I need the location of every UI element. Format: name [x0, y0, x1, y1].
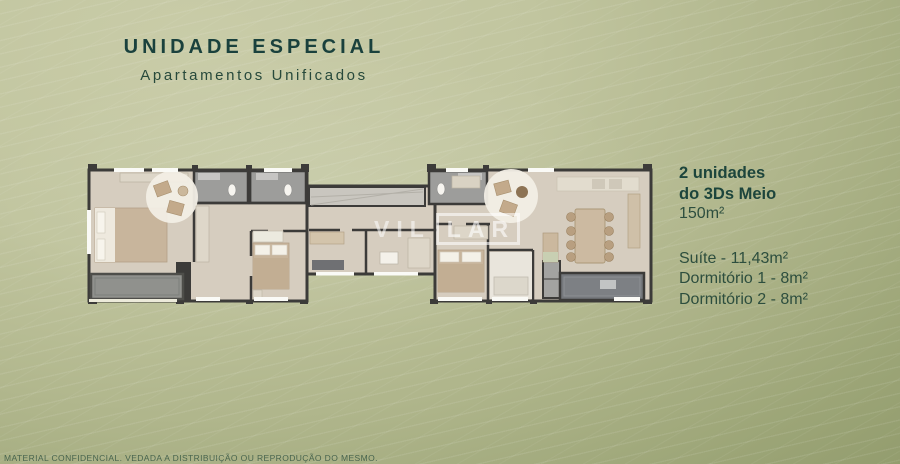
- left-balcony: [91, 274, 183, 299]
- header: UNIDADE ESPECIAL Apartamentos Unificados: [106, 36, 402, 84]
- total-area: 150m²: [679, 204, 889, 225]
- wall-cabinets: [628, 194, 640, 248]
- floor-plan-drawing: [85, 153, 660, 305]
- suite-closet-column: [196, 206, 209, 262]
- suite-rug-and-chairs: [146, 171, 198, 223]
- middle-terrace: [309, 187, 425, 206]
- suite-bathroom-right: [490, 252, 532, 299]
- page-subtitle: Apartamentos Unificados: [106, 67, 402, 84]
- confidentiality-disclaimer: MATERIAL CONFIDENCIAL. VEDADA A DISTRIBU…: [4, 453, 378, 463]
- room-area-dorm1: Dormitório 1 - 8m²: [679, 269, 889, 290]
- unit-info-panel: 2 unidades do 3Ds Meio 150m² Suíte - 11,…: [679, 163, 889, 310]
- room-areas-list: Suíte - 11,43m² Dormitório 1 - 8m² Dormi…: [679, 249, 889, 311]
- kitchen-island: [543, 233, 558, 262]
- sideboard: [452, 176, 480, 188]
- villar-logo-watermark: VIL LAR: [374, 213, 520, 245]
- marketing-slide: UNIDADE ESPECIAL Apartamentos Unificados: [0, 0, 900, 464]
- watermark-text-lar-box: LAR: [436, 213, 520, 245]
- kitchen-counter: [560, 273, 644, 300]
- kitchen-top-counter: [557, 177, 639, 191]
- watermark-text-vil: VIL: [374, 216, 431, 243]
- service-shaft-right: [543, 261, 560, 298]
- unit-count-line1: 2 unidades: [679, 163, 889, 184]
- room-area-dorm2: Dormitório 2 - 8m²: [679, 290, 889, 311]
- page-title: UNIDADE ESPECIAL: [106, 36, 402, 59]
- floor-plan: VIL LAR: [85, 153, 660, 305]
- unit-count-line2: do 3Ds Meio: [679, 184, 889, 205]
- room-area-suite: Suíte - 11,43m²: [679, 249, 889, 270]
